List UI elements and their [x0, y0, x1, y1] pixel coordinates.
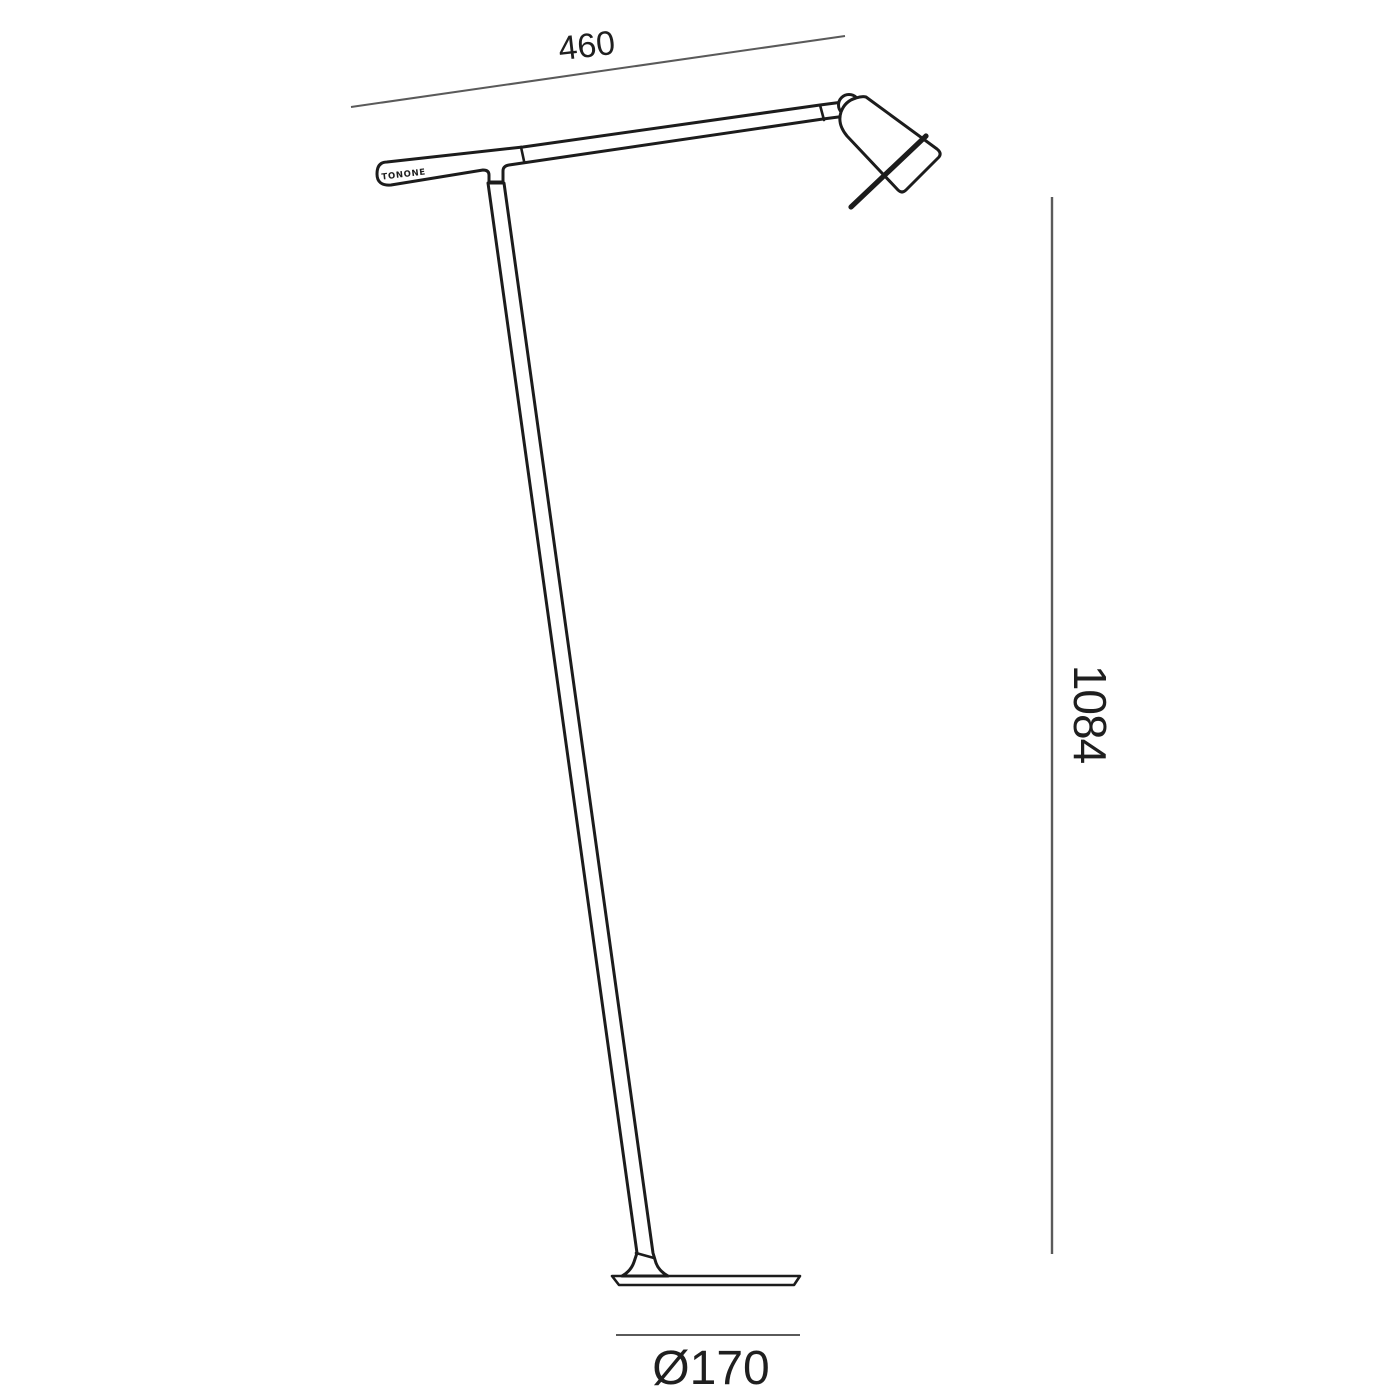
lamp-drawing	[377, 95, 940, 1286]
dimension-labels: 460 1084 Ø170 TONONE	[381, 24, 1116, 1395]
arm-reach-dimension-label: 460	[556, 24, 617, 68]
height-dimension-label: 1084	[1064, 665, 1116, 764]
lamp-arm-and-handle	[377, 102, 846, 185]
base-diameter-dimension-label: Ø170	[652, 1342, 769, 1395]
floor-lamp-dimension-diagram: 460 1084 Ø170 TONONE	[0, 0, 1400, 1400]
dimension-drawing-canvas: 460 1084 Ø170 TONONE	[0, 0, 1400, 1400]
lamp-stem	[488, 183, 668, 1276]
dimension-lines	[351, 36, 1052, 1335]
lamp-head	[840, 97, 940, 192]
